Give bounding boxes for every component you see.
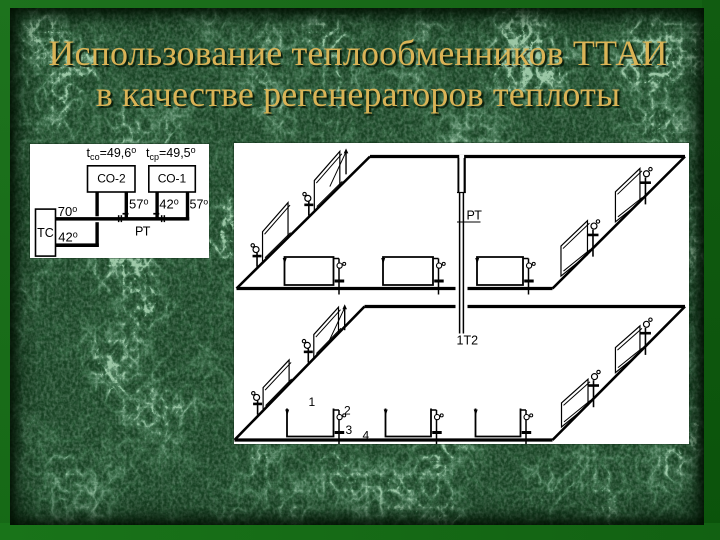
svg-text:РТ: РТ — [135, 225, 151, 239]
svg-text:2: 2 — [344, 404, 351, 418]
svg-text:57о: 57о — [129, 197, 148, 212]
svg-text:4: 4 — [363, 429, 370, 443]
svg-text:1: 1 — [309, 395, 316, 409]
svg-text:СО-1: СО-1 — [158, 172, 187, 186]
svg-text:СО-2: СО-2 — [97, 172, 126, 186]
svg-text:70о: 70о — [58, 204, 77, 219]
svg-text:3: 3 — [346, 423, 353, 437]
svg-text:ТС: ТС — [37, 226, 54, 240]
svg-text:42о: 42о — [58, 230, 77, 245]
svg-text:1Т2: 1Т2 — [457, 334, 479, 348]
svg-text:tср=49,5о: tср=49,5о — [146, 145, 196, 162]
svg-text:42о: 42о — [159, 197, 178, 212]
svg-text:57о: 57о — [190, 197, 209, 212]
svg-text:tсо=49,6о: tсо=49,6о — [87, 145, 137, 162]
svg-text:РТ: РТ — [467, 209, 483, 223]
